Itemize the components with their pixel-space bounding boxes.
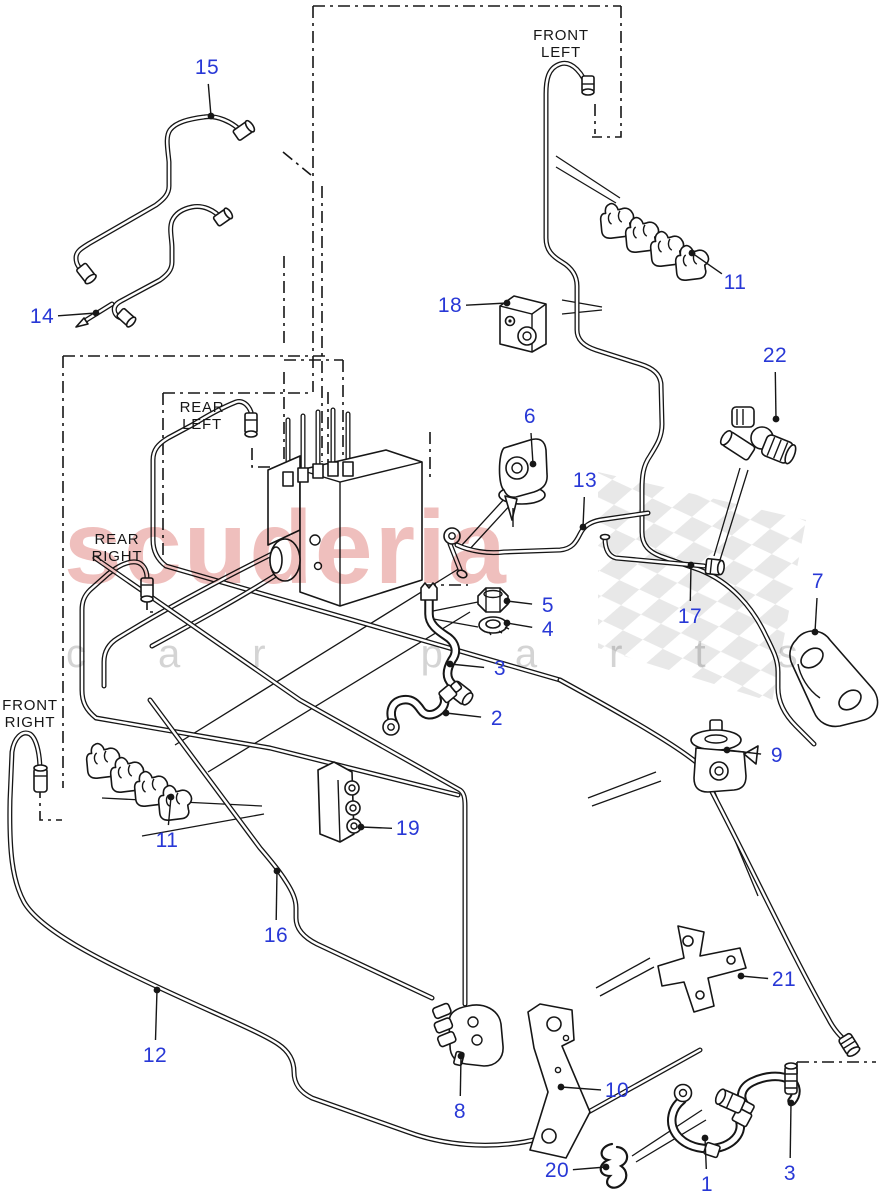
abs-module bbox=[268, 450, 422, 606]
callout-8[interactable]: 8 bbox=[454, 1100, 466, 1124]
part-9-clip bbox=[691, 720, 758, 792]
callout-12[interactable]: 12 bbox=[143, 1044, 167, 1068]
pipe-clip-group-top bbox=[599, 203, 710, 283]
label-front-right: FRONT RIGHT bbox=[2, 697, 58, 731]
callout-10[interactable]: 10 bbox=[605, 1079, 629, 1103]
callout-20[interactable]: 20 bbox=[545, 1159, 569, 1183]
part-7-bracket bbox=[790, 631, 878, 726]
callout-13[interactable]: 13 bbox=[573, 469, 597, 493]
callout-3-mid[interactable]: 3 bbox=[494, 657, 506, 681]
part-19-clip bbox=[318, 762, 361, 842]
label-rear-right: REAR RIGHT bbox=[92, 531, 143, 565]
callout-11-left[interactable]: 11 bbox=[156, 829, 179, 853]
label-rear-left: REAR LEFT bbox=[180, 399, 225, 433]
part-5-nut bbox=[478, 588, 508, 612]
callout-1[interactable]: 1 bbox=[701, 1173, 713, 1197]
callout-6[interactable]: 6 bbox=[524, 405, 536, 429]
diagram-artwork bbox=[0, 0, 888, 1200]
part-20-spring-clip bbox=[601, 1144, 627, 1188]
callout-22[interactable]: 22 bbox=[763, 344, 787, 368]
parts-diagram-page: scuderia car parts FRONT LEFTREAR LEFTRE… bbox=[0, 0, 888, 1200]
callout-7[interactable]: 7 bbox=[812, 570, 824, 594]
callout-16[interactable]: 16 bbox=[264, 924, 288, 948]
part-21-bracket bbox=[658, 926, 746, 1012]
callout-15[interactable]: 15 bbox=[195, 56, 219, 80]
part-10-bracket bbox=[528, 1004, 590, 1158]
callout-5[interactable]: 5 bbox=[542, 594, 554, 618]
part-22-connector bbox=[718, 407, 798, 466]
label-front-left: FRONT LEFT bbox=[533, 27, 589, 61]
callout-18[interactable]: 18 bbox=[438, 294, 462, 318]
part-8-clip bbox=[426, 1003, 503, 1066]
callout-3-bottom[interactable]: 3 bbox=[784, 1162, 796, 1186]
callout-4[interactable]: 4 bbox=[542, 618, 554, 642]
part-3b-hose-fittings bbox=[714, 1063, 797, 1114]
part-18-bracket bbox=[500, 296, 546, 352]
part-6-clip bbox=[499, 439, 547, 527]
callout-11-top[interactable]: 11 bbox=[724, 271, 747, 295]
callout-19[interactable]: 19 bbox=[396, 817, 420, 841]
callout-14[interactable]: 14 bbox=[30, 305, 54, 329]
callout-17[interactable]: 17 bbox=[678, 605, 702, 629]
callout-9[interactable]: 9 bbox=[771, 744, 783, 768]
callout-21[interactable]: 21 bbox=[772, 968, 796, 992]
part-4-washer bbox=[479, 617, 509, 635]
pipe-clip-group-left bbox=[85, 743, 193, 823]
checkered-flag-watermark bbox=[598, 472, 806, 702]
callout-2[interactable]: 2 bbox=[491, 707, 503, 731]
